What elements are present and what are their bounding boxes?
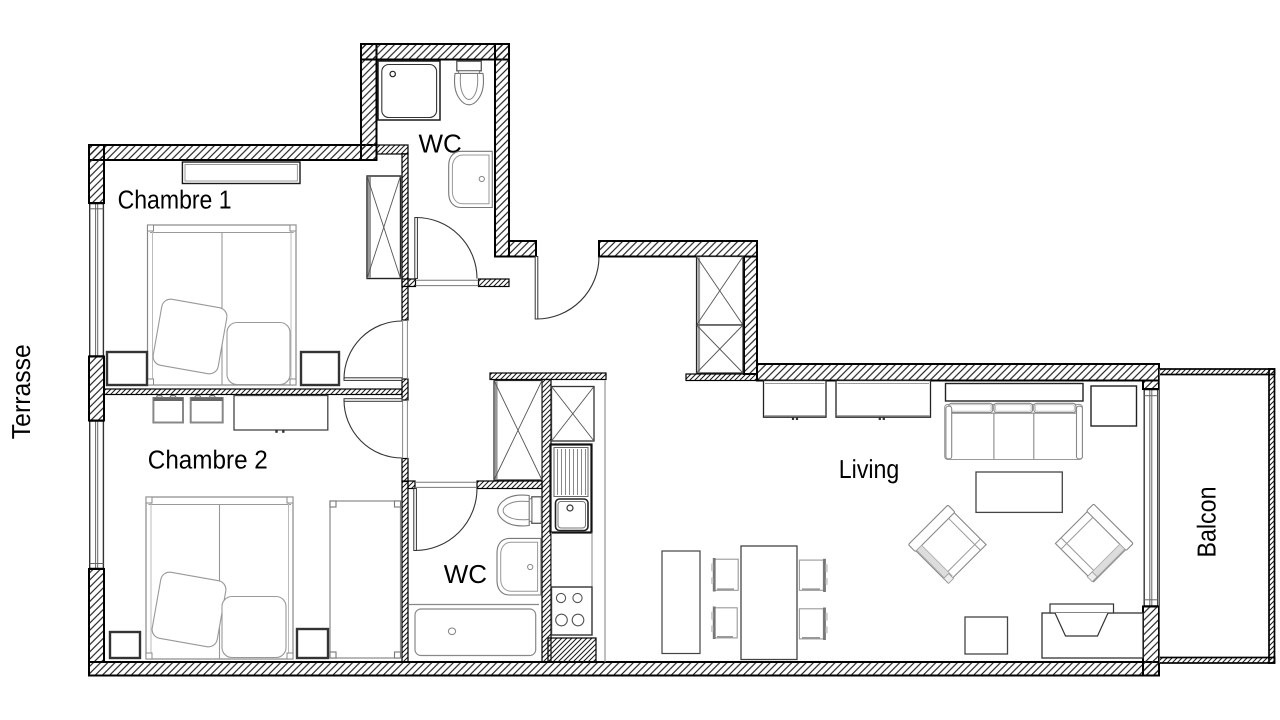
svg-text:Balcon: Balcon bbox=[1192, 487, 1222, 558]
svg-text:Chambre 2: Chambre 2 bbox=[148, 445, 268, 475]
svg-text:Living: Living bbox=[839, 454, 900, 484]
svg-text:Chambre 1: Chambre 1 bbox=[118, 184, 232, 214]
svg-text:WC: WC bbox=[444, 559, 487, 589]
svg-text:Terrasse: Terrasse bbox=[6, 344, 36, 439]
